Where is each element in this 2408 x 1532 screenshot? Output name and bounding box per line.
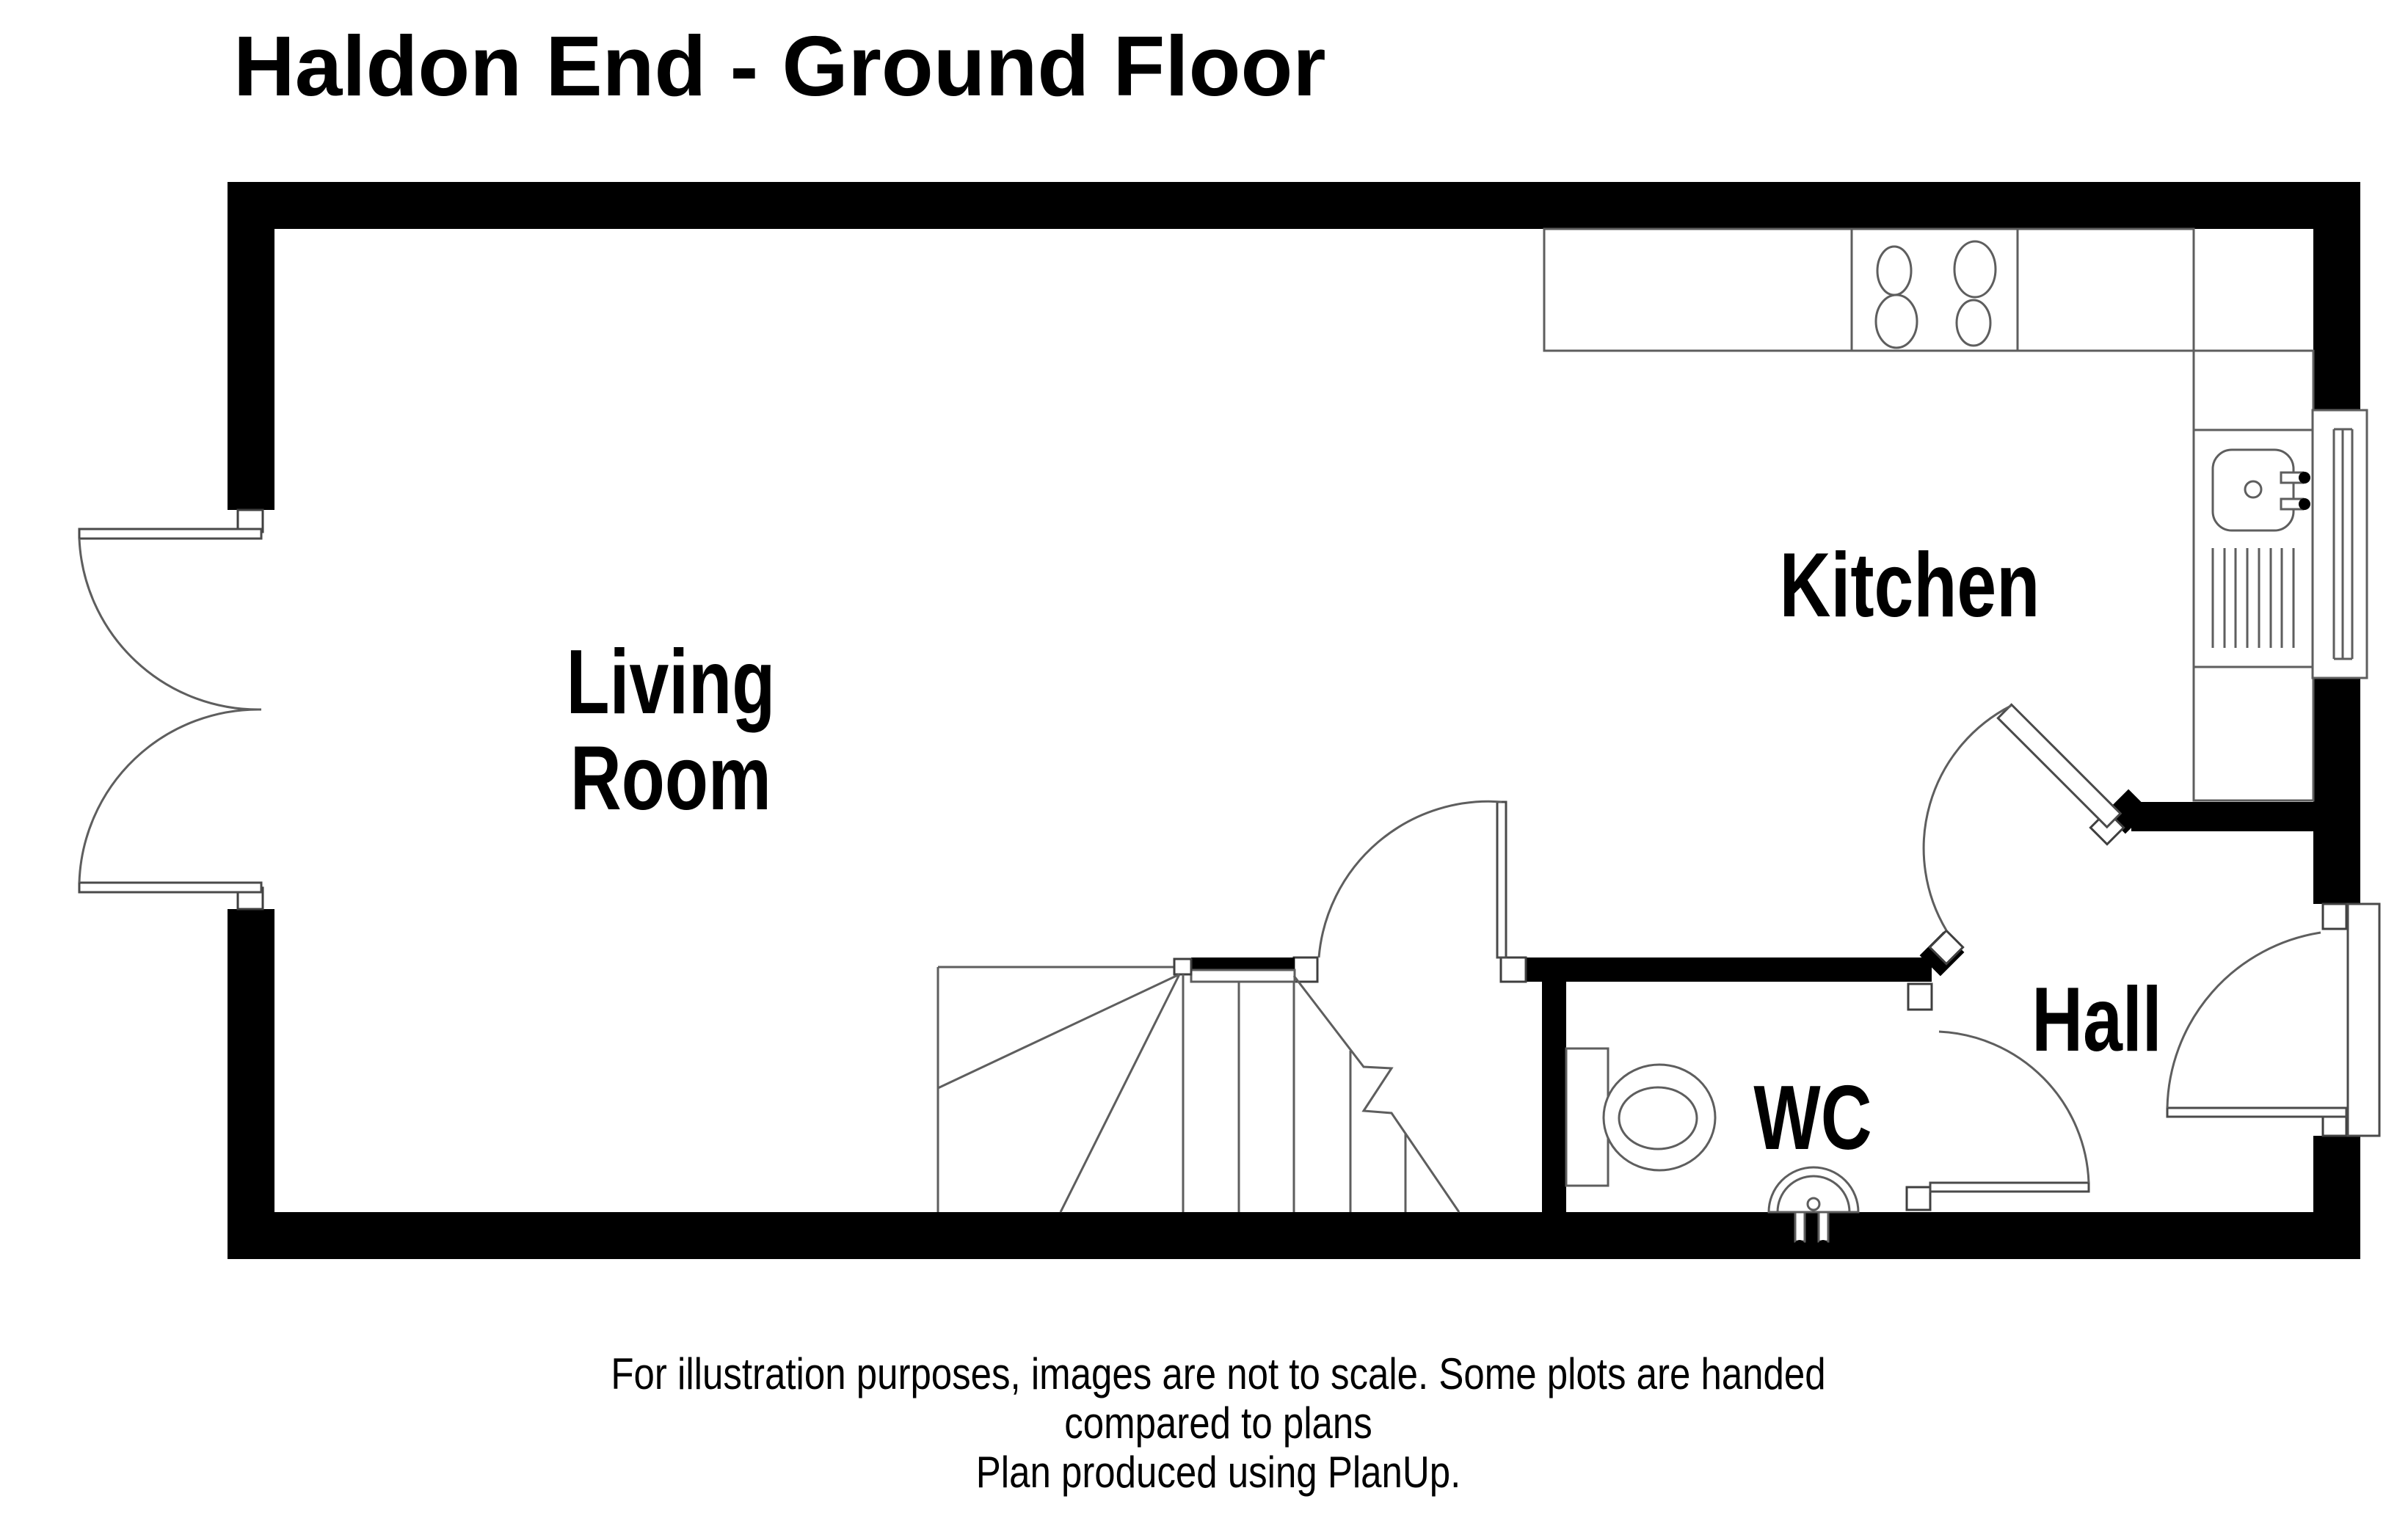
living-room-door-swing: [1319, 801, 1502, 957]
living-room-door: [1294, 801, 1526, 982]
disclaimer-line2: compared to plans: [1064, 1398, 1372, 1448]
wall-wc-left: [1542, 982, 1566, 1212]
toilet-icon: [1566, 1048, 1715, 1186]
window-icon: [2313, 410, 2367, 678]
wall-right-mid: [2313, 678, 2360, 904]
kitchen-door-swing: [1924, 706, 2011, 930]
kitchen-label: Kitchen: [1780, 533, 2040, 635]
disclaimer-line3: Plan produced using PlanUp.: [976, 1448, 1461, 1497]
living-room-label-line1: Living: [567, 630, 776, 732]
kitchen-worktop-right: [2194, 351, 2313, 800]
front-door-slab: [2348, 904, 2379, 1136]
stairs-newel-post: [1174, 959, 1191, 974]
living-room-label-line2: Room: [570, 726, 771, 828]
wall-wc-top: [1526, 957, 1932, 982]
wc-door-leaf: [1930, 1183, 2089, 1192]
patio-door-swing-bottom: [79, 710, 261, 883]
stairs-straight-treads: [1239, 982, 1405, 1212]
front-door-leaf: [2167, 1108, 2346, 1117]
staircase: [938, 957, 1459, 1212]
patio-door-leaf-bottom: [79, 883, 261, 892]
disclaimer: For illustration purposes, images are no…: [611, 1349, 1825, 1497]
patio-door-leaf-top: [79, 529, 261, 539]
kitchen-door-leaf: [1998, 704, 2120, 827]
wall-left-lower: [228, 909, 274, 1259]
patio-double-door: [79, 510, 263, 909]
wall-right-top: [2313, 182, 2360, 410]
kitchen-worktop-top: [1544, 229, 2194, 351]
living-room-door-leaf: [1497, 802, 1506, 957]
living-room-door-jamb-left: [1294, 957, 1317, 982]
front-door: [2167, 904, 2379, 1136]
living-room-door-jamb-right: [1501, 957, 1526, 982]
disclaimer-line1: For illustration purposes, images are no…: [611, 1349, 1825, 1398]
room-labels: Living Room Kitchen Hall WC: [567, 533, 2162, 1168]
stairs-winder-treads: [938, 974, 1183, 1212]
wc-door-jamb-bottom: [1907, 1187, 1930, 1210]
kitchen-door: [1924, 704, 2124, 963]
page-title: Haldon End - Ground Floor: [233, 18, 1325, 114]
hall-label: Hall: [2031, 968, 2161, 1070]
wall-top: [228, 182, 2360, 229]
floor-plan-canvas: Haldon End - Ground Floor: [0, 0, 2408, 1532]
front-door-jamb-top: [2323, 904, 2346, 929]
kitchen-fixtures: [1544, 229, 2367, 800]
front-door-swing: [2167, 933, 2321, 1108]
stairs-break-line: [1294, 976, 1459, 1212]
wc-label: WC: [1753, 1066, 1872, 1168]
wall-bottom: [228, 1212, 2360, 1259]
wall-kitchen-hall: [2131, 802, 2313, 831]
wc-door-jamb-top: [1908, 984, 1932, 1010]
wall-left-upper: [228, 182, 274, 510]
patio-door-swing-top: [79, 539, 261, 710]
stairs-handrail: [1191, 957, 1295, 970]
stairs-top-landing: [1191, 970, 1295, 982]
wall-right-bottom: [2313, 1136, 2360, 1259]
